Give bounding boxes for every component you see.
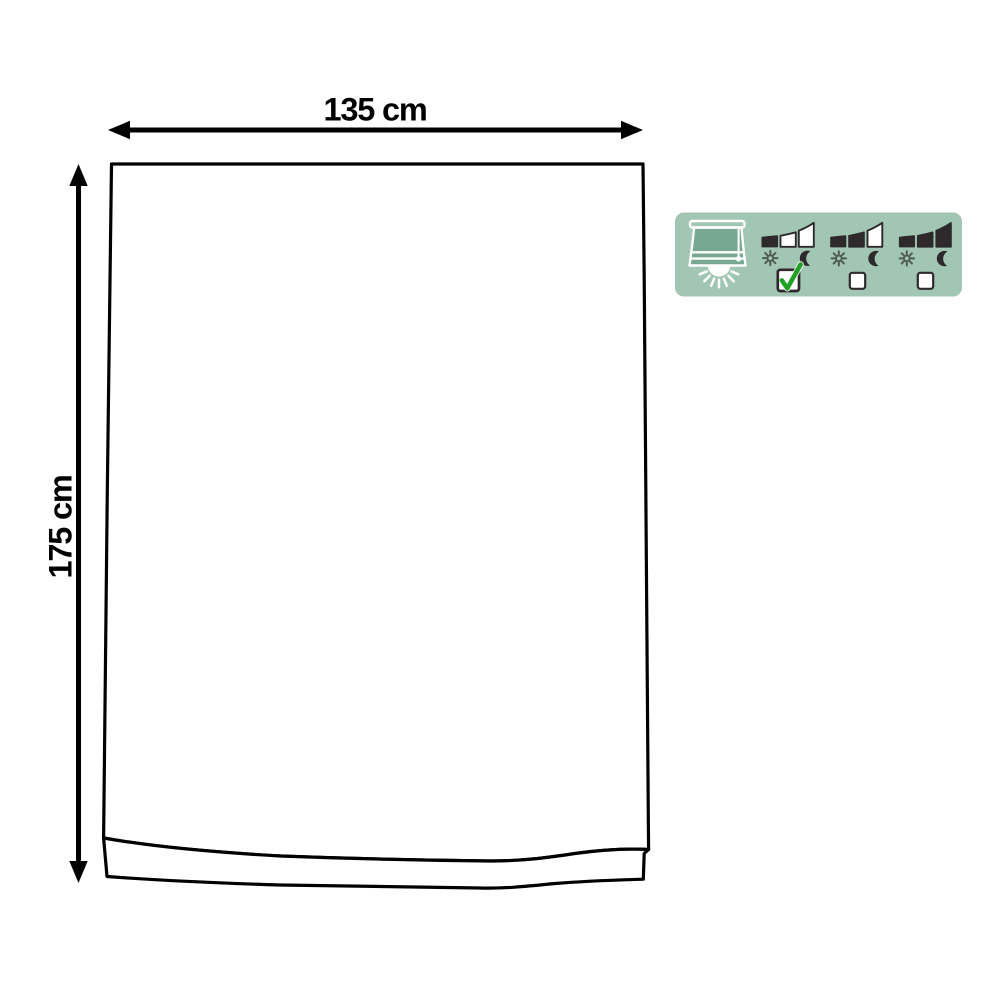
svg-text:135 cm: 135 cm bbox=[323, 92, 426, 128]
svg-text:175 cm: 175 cm bbox=[43, 475, 79, 578]
